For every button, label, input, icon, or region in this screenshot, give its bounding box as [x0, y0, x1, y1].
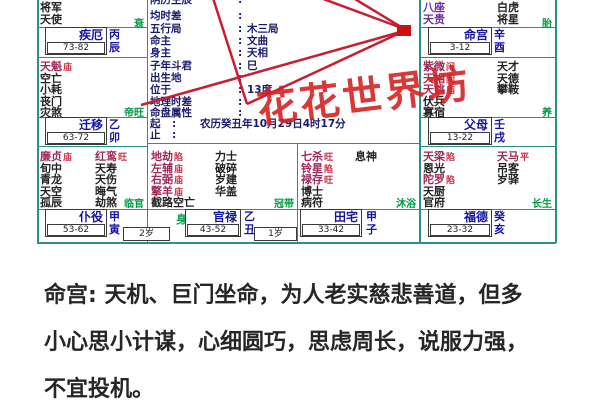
star-item: 岁建	[215, 174, 237, 185]
palace-marker-square	[397, 25, 411, 36]
star-item: 华盖	[215, 186, 237, 197]
life-stage-label: 沐浴	[396, 195, 416, 210]
star-name: 攀鞍	[497, 83, 519, 96]
stem-branch: 甲寅	[109, 210, 123, 236]
star-item: 息神	[355, 151, 377, 162]
star-brightness: 庙	[174, 176, 183, 186]
reading-line-3: 不宜投机。	[44, 366, 564, 413]
info-colon: :	[238, 24, 242, 35]
grid-line	[420, 146, 556, 147]
star-item: 白虎	[497, 2, 519, 13]
decade-age-range: 23-32	[430, 224, 490, 236]
star-item: 将星	[497, 14, 519, 25]
life-stage-label: 冠带	[274, 195, 294, 210]
star-item: 恩光	[423, 163, 445, 174]
info-colon: :	[238, 73, 242, 84]
star-brightness: 旺	[324, 153, 333, 163]
star-brightness: 陷	[324, 165, 333, 175]
info-colon: :	[238, 11, 242, 22]
palace-strip-you: 命宫3-12	[428, 27, 492, 55]
palace-strip-chou: 官禄43-52	[185, 209, 241, 237]
info-value: 文曲	[247, 36, 268, 47]
palace-name: 田宅	[301, 210, 361, 224]
grid-line	[37, 57, 148, 58]
stem-branch: 乙卯	[109, 118, 123, 144]
stem-branch: 丙辰	[109, 28, 123, 54]
star-item: 力士	[215, 151, 237, 162]
star-item: 八座	[423, 2, 445, 13]
grid-line	[147, 0, 148, 243]
star-name: 病符	[301, 196, 323, 209]
star-name: 官府	[423, 196, 445, 209]
star-brightness: 旺	[324, 176, 333, 186]
star-item: 官府	[423, 197, 445, 208]
star-item: 天德	[497, 73, 519, 84]
life-stage-label: 帝旺	[124, 104, 144, 119]
star-item: 天贵	[423, 14, 445, 25]
stem-branch: 辛酉	[494, 28, 508, 54]
palace-strip-xu: 父母13-22	[428, 117, 492, 145]
stem-branch: 癸亥	[494, 210, 508, 236]
grid-line	[37, 146, 148, 147]
star-item: 劫煞	[95, 197, 117, 208]
star-name: 劫煞	[95, 196, 117, 209]
decade-age-range: 33-42	[302, 224, 360, 236]
info-colon: :	[238, 61, 242, 72]
star-item: 破碎	[215, 163, 237, 174]
grid-line	[37, 242, 556, 244]
star-name: 孤辰	[40, 196, 62, 209]
year-age-box: 1岁	[254, 227, 297, 241]
star-item: 空亡	[40, 73, 62, 84]
star-name: 截路空亡	[151, 196, 195, 209]
grid-line	[297, 143, 298, 243]
decade-age-range: 73-82	[47, 42, 105, 54]
info-label: 子年斗君	[150, 61, 192, 72]
reading-line-1: 命宫: 天机、巨门坐命，为人老实慈悲善道，但多	[44, 272, 564, 319]
life-stage-label: 长生	[532, 195, 552, 210]
life-stage-label: 胎	[542, 15, 552, 30]
reading-line-2: 小心思小计谋，心细圆巧，思虑周长，说服力强，	[44, 319, 564, 366]
star-item: 吊客	[497, 163, 519, 174]
info-value: 木三局	[247, 24, 279, 35]
info-colon: :	[172, 130, 176, 141]
grid-line	[555, 0, 557, 243]
info-label: 五行局	[150, 24, 182, 35]
star-name: 华盖	[215, 185, 237, 198]
star-item: 天伤	[95, 174, 117, 185]
star-brightness: 陷	[446, 153, 455, 163]
life-stage-label: 衰	[134, 15, 144, 30]
life-stage-label: 养	[542, 104, 552, 119]
star-name: 将星	[497, 13, 519, 26]
star-brightness: 平	[520, 153, 529, 163]
info-colon: :	[238, 85, 242, 96]
year-age-box: 2岁	[123, 227, 170, 241]
palace-name: 迁移	[46, 118, 106, 132]
star-brightness: 陷	[446, 176, 455, 186]
page: { "chart": { "watermark": "花花世界坊", "cent…	[0, 0, 600, 400]
body-palace-marker: 身	[176, 211, 187, 227]
info-colon: :	[238, 36, 242, 47]
info-label: 均时差	[150, 11, 182, 22]
star-item: 小耗	[40, 84, 62, 95]
life-stage-label: 临官	[124, 195, 144, 210]
palace-strip-hai: 福德23-32	[428, 209, 492, 237]
star-item: 天才	[497, 61, 519, 72]
reading-text: 命宫: 天机、巨门坐命，为人老实慈悲善道，但多 小心思小计谋，心细圆巧，思虑周长…	[44, 272, 564, 413]
info-label: 命主	[150, 36, 171, 47]
star-name: 天贵	[423, 13, 445, 26]
stem-branch: 甲子	[366, 210, 380, 236]
star-item: 截路空亡	[151, 197, 195, 208]
stem-branch: 壬戌	[494, 118, 508, 144]
star-item: 岁驿	[497, 174, 519, 185]
palace-strip-yin: 仆役53-62	[45, 209, 107, 237]
info-colon: :	[238, 0, 242, 6]
decade-age-range: 63-72	[47, 132, 105, 144]
palace-name: 仆役	[46, 210, 106, 224]
star-name: 岁驿	[497, 173, 519, 186]
info-label: 出生地	[150, 73, 182, 84]
star-brightness: 庙	[63, 63, 72, 73]
palace-name: 疾厄	[46, 28, 106, 42]
info-label: 阴历生辰	[150, 0, 192, 6]
decade-age-range: 13-22	[430, 132, 490, 144]
info-value: 天相	[247, 48, 268, 59]
info-value: 巳	[247, 61, 258, 72]
star-brightness: 旺	[118, 153, 127, 163]
info-label: 身主	[150, 48, 171, 59]
decade-age-range: 53-62	[47, 224, 105, 236]
grid-line	[37, 0, 39, 243]
grid-line	[419, 0, 421, 243]
star-brightness: 庙	[174, 165, 183, 175]
star-item: 将军	[40, 2, 62, 13]
star-item: 青龙	[40, 174, 62, 185]
star-item: 孤辰	[40, 197, 62, 208]
decade-age-range: 43-52	[187, 224, 239, 236]
star-name: 息神	[355, 150, 377, 163]
palace-strip-chen: 疾厄73-82	[45, 27, 107, 55]
star-brightness: 陷	[174, 153, 183, 163]
palace-name: 官禄	[186, 210, 240, 224]
palace-name: 父母	[429, 118, 491, 132]
palace-strip-zi: 田宅33-42	[300, 209, 362, 237]
info-label: 位于	[150, 85, 171, 96]
info-colon: :	[238, 48, 242, 59]
star-brightness: 庙	[63, 153, 72, 163]
star-item: 天寿	[95, 163, 117, 174]
palace-name: 福德	[429, 210, 491, 224]
star-item: 病符	[301, 197, 323, 208]
star-item: 天使	[40, 14, 62, 25]
grid-line	[148, 143, 420, 144]
star-name: 天使	[40, 13, 62, 26]
info-label: 止	[150, 130, 161, 141]
palace-name: 命宫	[429, 28, 491, 42]
star-item: 旬中	[40, 163, 62, 174]
star-item: 攀鞍	[497, 84, 519, 95]
palace-strip-mao: 迁移63-72	[45, 117, 107, 145]
